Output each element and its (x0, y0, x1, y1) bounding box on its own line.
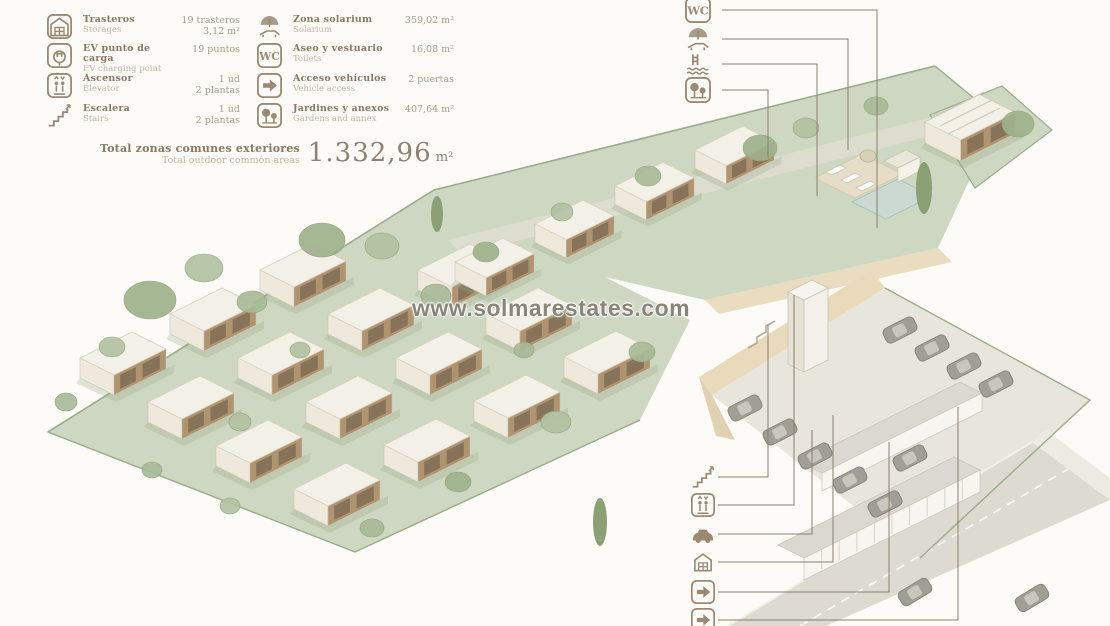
legend-value-line: 1 ud (178, 74, 240, 85)
legend-row-solarium: Zona solariumSolarium359,02 m² (256, 13, 454, 43)
legend-row-labels: AscensorElevator (73, 72, 178, 94)
stairs-callout-icon (690, 464, 716, 490)
arrow-callout-icon (690, 607, 716, 626)
legend-value-line: 2 plantas (178, 85, 240, 96)
car (1013, 582, 1050, 613)
tree (124, 281, 176, 319)
legend-value-line: 1 ud (178, 104, 240, 115)
legend-label-en: Gardens and annex (293, 114, 392, 124)
legend-row-elevator: AscensorElevator1 ud2 plantas (46, 72, 240, 102)
tree (793, 118, 819, 138)
cypress-tree (593, 498, 607, 546)
elevator-tower-face (804, 288, 828, 372)
tree (514, 342, 534, 358)
legend-label-es: Aseo y vestuario (293, 44, 392, 54)
tree (365, 233, 399, 259)
legend-label-en: Stairs (83, 114, 178, 124)
ev-icon (46, 42, 73, 69)
legend-row-pool: Swimming pool (256, 0, 454, 13)
legend-row-storage: TrasterosStorages19 trasteros3,12 m² (46, 13, 240, 43)
legend-row-labels: Jardines y anexosGardens and annex (283, 102, 392, 124)
legend-row-labels: EscaleraStairs (73, 102, 178, 124)
tree (1002, 111, 1034, 137)
solarium-icon (256, 13, 283, 40)
legend-value-line: 16,08 m² (392, 44, 454, 55)
tree (220, 498, 240, 514)
legend-row-labels: TrasterosStorages (73, 13, 178, 35)
legend-label-en: Vehicle access (293, 84, 392, 94)
legend-label-en: Toilets (293, 54, 392, 64)
legend-label-es: Trasteros (83, 15, 178, 25)
tree (299, 223, 345, 257)
tree (360, 519, 384, 537)
legend-row-arrow: Acceso vehículosVehicle access2 puertas (256, 72, 454, 102)
tree (473, 242, 499, 262)
legend-value-line: 3,12 m² (178, 26, 240, 37)
wc-icon: WC (256, 42, 283, 69)
tree (864, 97, 888, 115)
tree (743, 135, 777, 161)
legend-row-labels: Aseo y vestuarioToilets (283, 42, 392, 64)
total-value-unit: m² (432, 150, 454, 165)
legend-label-es: Ascensor (83, 74, 178, 84)
legend-value: 1 ud2 plantas (178, 72, 240, 96)
legend-row-car: Outdoor parking11,5 m² (46, 0, 240, 13)
legend-label-es: Zona solarium (293, 15, 392, 25)
tree (635, 166, 661, 186)
car-callout-icon (690, 521, 716, 547)
svg-text:WC: WC (686, 5, 708, 18)
tree (541, 411, 571, 433)
cypress-tree (431, 196, 443, 232)
legend-row-labels: Zona solariumSolarium (283, 13, 392, 35)
tree (290, 342, 310, 358)
legend-label-es: Escalera (83, 104, 178, 114)
legend-value: 16,08 m² (392, 42, 454, 55)
total-value: 1.332,96 m² (308, 138, 453, 168)
legend-row-wc: WCAseo y vestuarioToilets16,08 m² (256, 42, 454, 72)
total-summary: Total zonas comunes exteriores Total out… (100, 138, 453, 168)
legend-label-en: Elevator (83, 84, 178, 94)
parasol (860, 150, 876, 162)
total-labels: Total zonas comunes exteriores Total out… (100, 138, 300, 166)
legend-value-line: 2 puertas (392, 74, 454, 85)
legend-row-labels: EV punto de cargaEV charging point (73, 42, 178, 74)
tree (445, 472, 471, 492)
legend-label-en: Solarium (293, 25, 392, 35)
legend-value: 2 puertas (392, 72, 454, 85)
brochure-page: www.solmarestates.com Outdoor parking11,… (0, 0, 1110, 626)
legend-value-line: 19 puntos (178, 44, 240, 55)
arrow-callout-icon (690, 579, 716, 605)
legend-value-line: 19 trasteros (178, 15, 240, 26)
tree (55, 393, 77, 411)
elevator-icon (46, 72, 73, 99)
legend-row-stairs: EscaleraStairs1 ud2 plantas (46, 102, 240, 132)
legend-value: 1 ud2 plantas (178, 102, 240, 126)
legend-row-ev: EV punto de cargaEV charging point19 pun… (46, 42, 240, 72)
legend-value-line: 407,64 m² (392, 104, 454, 115)
tree (237, 291, 267, 313)
total-label-es: Total zonas comunes exteriores (100, 143, 300, 155)
cypress-tree (916, 162, 932, 214)
solarium-callout-icon (684, 25, 712, 53)
storage-icon (46, 13, 73, 40)
legend-label-es: Acceso vehículos (293, 74, 392, 84)
tree (185, 254, 223, 282)
pool-callout-icon (684, 50, 712, 78)
svg-text:WC: WC (258, 50, 279, 63)
stairs-icon (46, 102, 73, 129)
storage-callout-icon (690, 549, 716, 575)
tree (142, 462, 162, 478)
legend-value-line: 359,02 m² (392, 15, 454, 26)
legend-row-trees: Jardines y anexosGardens and annex407,64… (256, 102, 454, 132)
legend-value-line: 2 plantas (178, 115, 240, 126)
tree (551, 203, 573, 221)
legend-value: 19 trasteros3,12 m² (178, 13, 240, 37)
arrow-icon (256, 72, 283, 99)
legend-value: 359,02 m² (392, 13, 454, 26)
trees-callout-icon (684, 76, 712, 104)
legend-row-labels: Acceso vehículosVehicle access (283, 72, 392, 94)
total-value-main: 1.332,96 (308, 138, 432, 168)
trees-icon (256, 102, 283, 129)
total-label-en: Total outdoor common areas (100, 155, 300, 166)
elevator-callout-icon (690, 492, 716, 518)
legend-value: 19 puntos (178, 42, 240, 55)
tree (629, 342, 655, 362)
legend-value: 407,64 m² (392, 102, 454, 115)
elevator-tower-side (788, 292, 804, 372)
tree (229, 413, 251, 431)
wc-callout-icon: WC (684, 0, 712, 24)
watermark: www.solmarestates.com (412, 295, 690, 322)
legend-label-es: Jardines y anexos (293, 104, 392, 114)
tree (99, 337, 125, 357)
legend-label-es: EV punto de carga (83, 44, 178, 64)
legend-label-en: Storages (83, 25, 178, 35)
